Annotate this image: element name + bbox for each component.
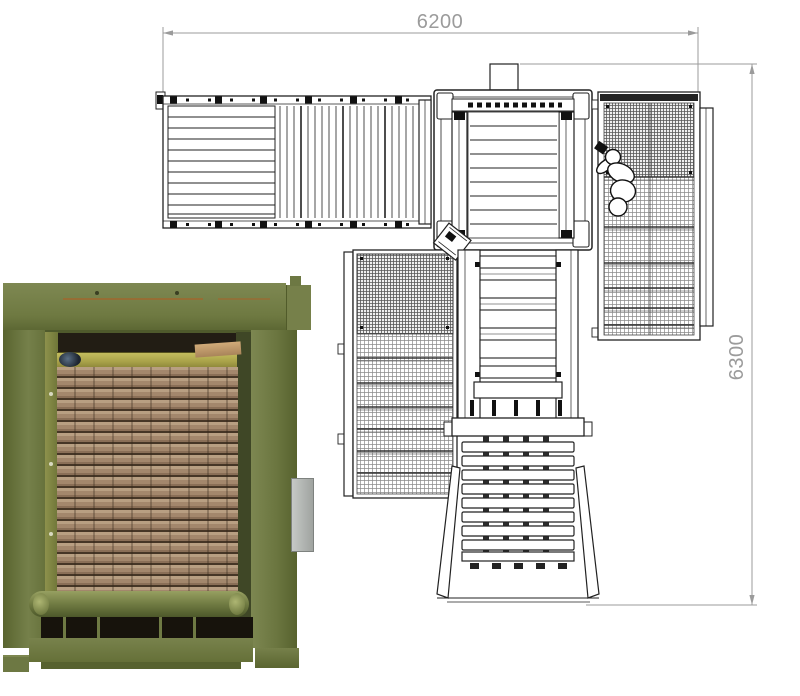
safety-fence-left xyxy=(338,223,471,498)
platen-roller xyxy=(59,352,81,367)
rail-bolt xyxy=(49,462,53,466)
press-top-attachment xyxy=(490,64,518,90)
safety-fence-right xyxy=(592,92,713,340)
header-notch xyxy=(290,276,301,286)
press-unit xyxy=(434,64,592,250)
header-screw xyxy=(95,291,99,295)
machine-photo xyxy=(3,272,313,672)
press-channel xyxy=(458,250,578,420)
machine-foot-left xyxy=(3,655,29,672)
guide-right xyxy=(576,466,599,598)
infeed-conveyor xyxy=(156,92,431,228)
roller-end-cap xyxy=(33,593,49,615)
rail-bolt xyxy=(49,392,53,396)
bale-grid-bars xyxy=(462,442,574,550)
bale-discharge xyxy=(437,418,599,602)
roller-end-cap xyxy=(229,593,245,615)
press-chamber xyxy=(468,112,559,238)
page: 6200 6300 xyxy=(0,0,800,696)
dimension-width-label: 6200 xyxy=(417,11,464,33)
rail-bolt xyxy=(49,532,53,536)
discharge-roller-beam xyxy=(29,591,249,617)
machine-foot-right xyxy=(255,648,299,668)
conveyor-slat-section xyxy=(168,106,275,218)
header-screw xyxy=(175,291,179,295)
base-slot xyxy=(41,617,253,638)
lumber-stack xyxy=(57,367,238,591)
dimension-width: 6200 xyxy=(163,11,698,96)
machine-header-beam xyxy=(3,283,286,333)
slot-post xyxy=(159,617,162,638)
header-right-cap xyxy=(286,285,311,330)
header-streak xyxy=(218,298,270,300)
slot-post xyxy=(97,617,100,638)
slot-post xyxy=(193,617,196,638)
header-streak xyxy=(63,298,203,300)
base-lip xyxy=(41,662,241,669)
dimension-height-label: 6300 xyxy=(726,334,748,381)
slot-post xyxy=(63,617,66,638)
side-bracket xyxy=(291,478,314,552)
machine-base xyxy=(29,638,253,662)
